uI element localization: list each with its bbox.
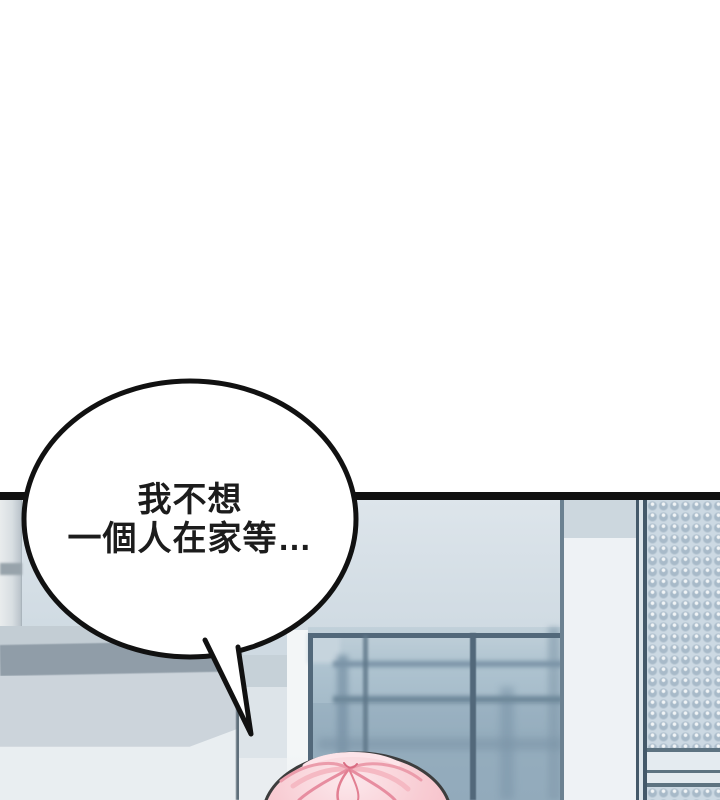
door-texture-upper [647, 500, 720, 748]
character-head [250, 740, 470, 800]
door-texture-lower [647, 787, 720, 800]
hair-outline-shape [263, 753, 451, 800]
door-frame [636, 500, 647, 800]
comic-panel: 我不想 一個人在家等… [0, 0, 720, 800]
pillar-top-block [564, 500, 636, 538]
door-band-line-mid [647, 770, 720, 773]
glass-frame-right [470, 633, 476, 800]
door-band-line-top [647, 748, 720, 752]
dialogue-line-2: 一個人在家等… [25, 520, 355, 559]
speech-bubble-tail [205, 640, 251, 734]
door-horizontal-band [647, 748, 720, 787]
frosted-glass-door [647, 500, 720, 800]
speech-bubble-text: 我不想 一個人在家等… [25, 481, 355, 559]
white-pillar-right [564, 500, 636, 800]
dialogue-line-1: 我不想 [25, 481, 355, 520]
